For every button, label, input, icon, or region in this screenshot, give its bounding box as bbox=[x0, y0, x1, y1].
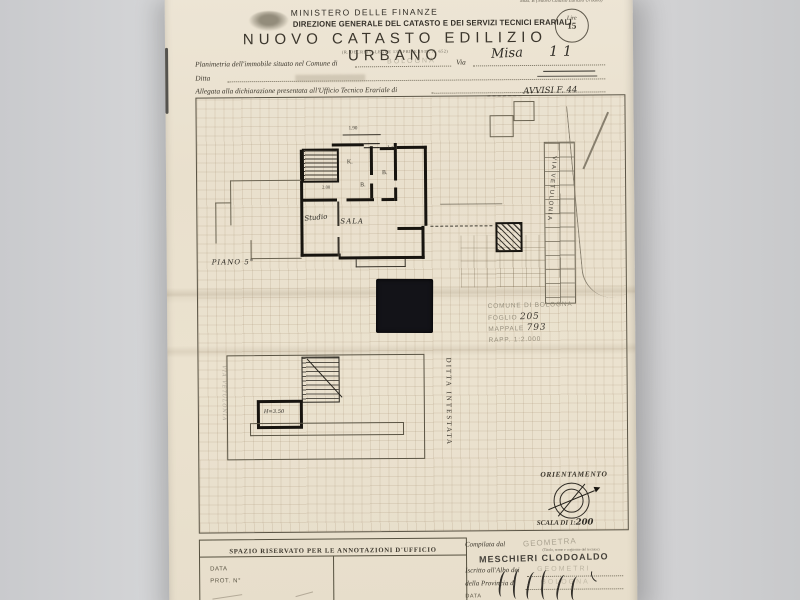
hand-rule-line bbox=[537, 75, 597, 76]
site-building-outline bbox=[490, 115, 514, 137]
ditta-intestata-vertical: DITTA INTESTATA bbox=[444, 358, 453, 456]
photo-of-document: Mod. B (Nuovo Catasto Edilizio Urbano) M… bbox=[0, 0, 800, 600]
comune-foglio-stamp: COMUNE DI BOLOGNA FOGLIO 205 MAPPALE 793… bbox=[488, 300, 574, 346]
scale-value-handwritten: 200 bbox=[576, 517, 594, 527]
faint-stamp-smudge bbox=[295, 74, 365, 82]
compiled-by-label: Compilata dal bbox=[465, 540, 505, 548]
civico-handwritten: 11 bbox=[549, 44, 577, 60]
eagle-emblem-icon bbox=[249, 11, 289, 31]
room-label-bath: B. bbox=[382, 170, 388, 176]
balcony-outline bbox=[356, 259, 406, 267]
site-building-outline bbox=[513, 101, 534, 121]
paper-edge-mark bbox=[165, 48, 169, 114]
office-annotations-box: SPAZIO RISERVATO PER LE ANNOTAZIONI D'UF… bbox=[199, 537, 468, 600]
via-label: Via bbox=[456, 57, 466, 66]
lower-staircase bbox=[301, 356, 339, 402]
staircase-hatch bbox=[302, 148, 339, 182]
technician-name-stamp: MESCHIERI CLODOALDO bbox=[479, 551, 609, 564]
apartment-floor-plan: K. B. B. 2.00 SALA Studio bbox=[300, 143, 428, 262]
dim-right: 1.15 bbox=[387, 146, 396, 152]
directorate-heading: DIREZIONE GENERALE DEL CATASTO E DEI SER… bbox=[293, 18, 572, 29]
line3-label: Allegata alla dichiarazione presentata a… bbox=[195, 85, 397, 96]
line1-label: Planimetria dell'immobile situato nel Co… bbox=[195, 58, 337, 68]
subject-parcel-hatch-icon bbox=[495, 222, 522, 252]
signature-stroke bbox=[588, 564, 608, 584]
stamp-rapp-line: RAPP. 1:2.000 bbox=[488, 333, 573, 346]
room-label-kitchen: K. bbox=[347, 159, 353, 165]
role-stamp: GEOMETRA bbox=[523, 536, 577, 548]
comune-blank-line bbox=[355, 66, 451, 68]
room-height-label: H=3.50 bbox=[264, 409, 300, 415]
ditta-label: Ditta bbox=[195, 73, 210, 82]
dim-line bbox=[343, 134, 381, 135]
register-label: Iscritto all'Albo dei bbox=[465, 566, 519, 574]
dash-dot-connector bbox=[430, 225, 492, 226]
date-label: DATA bbox=[465, 593, 481, 599]
drawing-area: K. B. B. 2.00 SALA Studio 1.90 1.15 PIAN… bbox=[195, 94, 628, 533]
box-divider bbox=[333, 556, 334, 600]
orientation-label: ORIENTAMENTO bbox=[540, 469, 607, 479]
signature-stroke bbox=[540, 570, 552, 600]
annotations-box-title: SPAZIO RISERVATO PER LE ANNOTAZIONI D'UF… bbox=[229, 547, 436, 556]
ink-redaction-block bbox=[376, 279, 433, 333]
compass-arrowhead bbox=[594, 485, 602, 493]
via-blank-line bbox=[473, 64, 605, 66]
data-label: DATA bbox=[210, 566, 228, 572]
ufficio-blank-line bbox=[431, 91, 605, 93]
pencil-mark bbox=[296, 591, 314, 597]
terrace-step bbox=[251, 240, 302, 259]
floor-label: PIANO 5° bbox=[212, 258, 255, 266]
ditta-blank-line bbox=[227, 78, 605, 82]
room-label-sala: SALA bbox=[340, 217, 364, 225]
foglio-label: FOGLIO bbox=[488, 314, 518, 322]
comune-stamp: BOLOGNA bbox=[387, 57, 436, 65]
compiler-section: Compilata dal GEOMETRA (Titolo, nome e c… bbox=[465, 536, 628, 600]
form-model-label: Mod. B (Nuovo Catasto Edilizio Urbano) bbox=[453, 0, 603, 5]
scale-label: SCALA DI 1:200 bbox=[537, 517, 594, 527]
dim-hall: 2.00 bbox=[322, 185, 330, 190]
foglio-value-handwritten: 205 bbox=[520, 311, 540, 321]
terrace-step bbox=[215, 202, 231, 243]
dim-top: 1.90 bbox=[349, 126, 358, 131]
sketch-line bbox=[440, 203, 502, 204]
ministry-heading: MINISTERO DELLE FINANZE bbox=[291, 7, 439, 18]
hand-rule-line bbox=[543, 70, 595, 71]
room-label-studio: Studio bbox=[304, 213, 328, 223]
mappale-label: MAPPALE bbox=[488, 325, 524, 333]
room-label-bath: B. bbox=[360, 182, 366, 188]
via-handwritten: Misa bbox=[491, 45, 524, 61]
compass-icon bbox=[553, 483, 589, 519]
street-pencil-vertical: VIA VETULONIA bbox=[221, 365, 228, 457]
terrace-outline bbox=[230, 180, 301, 226]
signature-stroke bbox=[497, 571, 511, 598]
lower-plan-band bbox=[250, 422, 404, 436]
mappale-value-handwritten: 793 bbox=[527, 323, 547, 333]
prot-label: PROT. N° bbox=[210, 578, 241, 584]
pencil-mark bbox=[212, 594, 242, 599]
cadastral-form-sheet: Mod. B (Nuovo Catasto Edilizio Urbano) M… bbox=[165, 0, 638, 600]
